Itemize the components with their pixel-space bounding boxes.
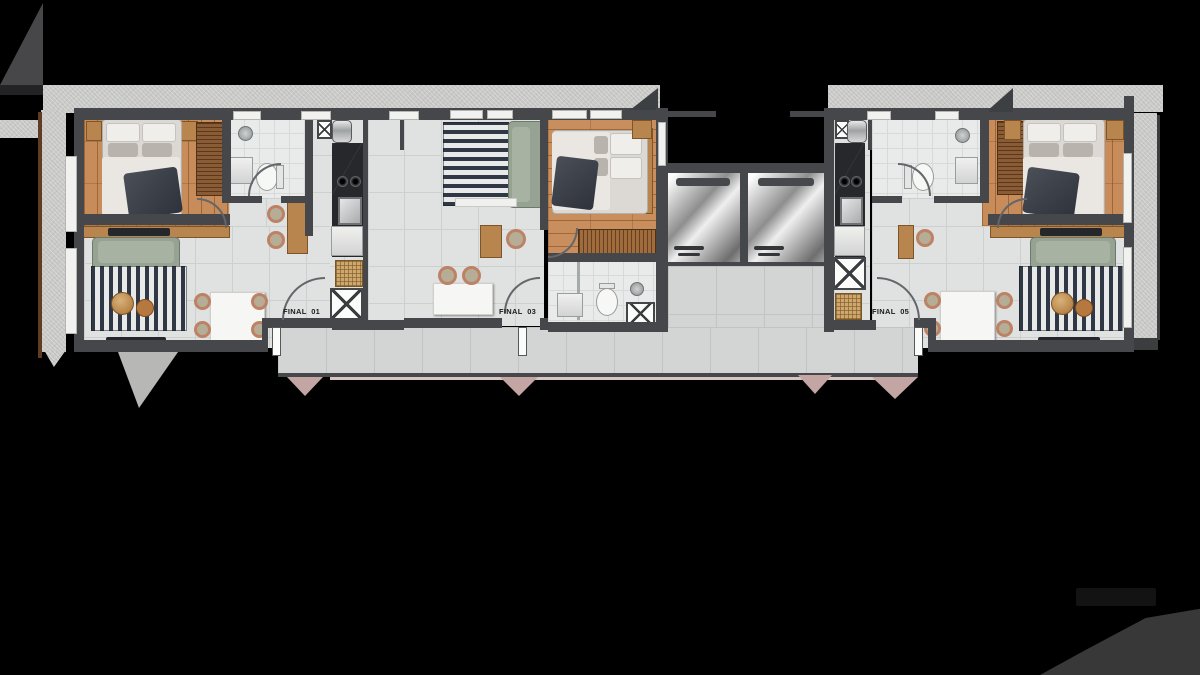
left-balcony-edge <box>38 112 42 358</box>
washing-machine <box>330 288 363 320</box>
elevator-threshold <box>668 262 824 266</box>
dining-chair <box>194 321 211 338</box>
elevator-1-sill-mark <box>678 253 700 256</box>
unit05-kitchen-bottom-wall <box>824 320 876 330</box>
dishwasher <box>834 226 865 256</box>
unit05-entry-step <box>928 318 936 352</box>
left-column-point <box>44 350 66 367</box>
entry-marker-03 <box>500 377 538 396</box>
unit05-bath-wall <box>872 196 902 203</box>
entry-marker-01 <box>287 377 323 396</box>
washing-machine <box>833 257 866 290</box>
laundry-basket <box>335 260 363 287</box>
entry-label-01: FINAL 01 <box>283 307 320 317</box>
coffee-table <box>1075 299 1093 317</box>
pillow <box>610 157 642 179</box>
window-sill <box>65 156 77 232</box>
desk-chair <box>267 205 285 223</box>
laundry-basket <box>835 293 862 320</box>
unit01-bath-wall <box>229 196 262 203</box>
cooktop-burner <box>337 176 348 187</box>
entry-door-leaf-03 <box>518 327 527 356</box>
shaft-stub-right <box>790 111 828 117</box>
corridor-accent-line <box>330 377 882 380</box>
window-sill <box>1123 153 1132 223</box>
dining-chair <box>924 292 941 309</box>
kitchens-divider-wall <box>363 112 368 330</box>
pillow <box>1063 123 1097 142</box>
unit01-entry-step <box>262 318 268 352</box>
unit03-kitchen-floor <box>368 118 404 328</box>
nightstand <box>1004 120 1021 140</box>
blanket <box>1022 167 1080 220</box>
unit03-bottom-wall <box>404 318 502 328</box>
dining-chair <box>996 292 1013 309</box>
dining-chair <box>462 266 481 285</box>
watermark-logo <box>1040 598 1200 675</box>
window-sill <box>233 111 261 120</box>
bathroom-sink <box>955 157 978 184</box>
wardrobe <box>196 122 225 196</box>
kitchen-sink <box>338 197 362 225</box>
desk-chair <box>916 229 934 247</box>
elevator-1-door <box>676 178 730 186</box>
unit01-bottom-wall <box>74 340 268 352</box>
tv <box>1040 228 1102 236</box>
entry-marker-05 <box>872 377 918 399</box>
entry-door-leaf-01 <box>272 327 281 356</box>
nightstand <box>632 120 652 139</box>
terrace-fragment <box>118 352 178 408</box>
unit01-bath-kitchen-wall <box>305 108 313 236</box>
window-sill <box>867 111 891 120</box>
dining-chair <box>194 293 211 310</box>
desk <box>480 225 502 258</box>
toilet <box>596 288 618 316</box>
elevator-2-door <box>758 178 814 186</box>
unit01-rug <box>91 266 187 331</box>
desk-chair <box>267 231 285 249</box>
unit03-entry-step <box>540 318 548 330</box>
nightstand <box>86 121 102 141</box>
left-exterior-column <box>41 110 66 352</box>
window-sill <box>487 110 513 119</box>
right-edge-line <box>1157 115 1160 340</box>
blanket <box>551 156 599 211</box>
tv <box>108 228 170 236</box>
pillow <box>108 143 138 157</box>
elevator-hall-floor <box>668 266 824 327</box>
dining-chair <box>438 266 457 285</box>
pillow <box>142 143 172 157</box>
elevator-2-sill-mark <box>758 253 780 256</box>
shower-head-icon <box>238 126 253 141</box>
shaft-stub-left <box>662 111 716 117</box>
window-sill <box>301 111 331 120</box>
elevator-mullion <box>740 172 748 265</box>
pillow <box>142 123 176 142</box>
elevator-2-sill-mark <box>754 246 784 250</box>
dishwasher <box>331 226 363 256</box>
window-sill <box>1123 247 1132 328</box>
dining-chair <box>251 293 268 310</box>
tv-shelf <box>455 198 517 207</box>
unit01-bed-bath-wall <box>222 108 231 203</box>
unit05-bath-wall <box>934 196 982 203</box>
unit05-bottom-wall <box>928 340 1134 352</box>
bathroom-sink <box>230 157 253 184</box>
unit03-bed-bath-wall <box>548 253 656 262</box>
window-sill <box>450 110 483 119</box>
right-exterior-column <box>1134 113 1157 340</box>
cooktop-burner <box>851 176 862 187</box>
corridor-floor <box>278 327 918 377</box>
window-sill <box>590 110 622 119</box>
dining-table <box>940 291 995 343</box>
pillow <box>1027 123 1061 142</box>
pillow <box>106 123 140 142</box>
desk <box>898 225 914 259</box>
cooktop-burner <box>350 176 361 187</box>
unit03-bath-bottom-wall <box>548 322 666 332</box>
shower-head-icon <box>630 282 644 296</box>
floor-plan: FINAL 01 FINAL 03 FINAL 05 <box>0 0 1200 675</box>
dining-chair <box>996 320 1013 337</box>
elevator-1-sill-mark <box>674 246 704 250</box>
entry-marker-hall <box>798 375 832 394</box>
cooktop-burner <box>839 176 850 187</box>
entry-label-05: FINAL 05 <box>872 307 909 317</box>
dining-table <box>433 283 493 315</box>
window-sill <box>552 110 587 119</box>
kitchens-bottom-wall <box>332 320 404 330</box>
left-wall-stub <box>0 120 43 138</box>
pillow <box>1063 143 1093 157</box>
unit05-bath-bed-wall <box>980 108 989 203</box>
unit03-rug <box>443 122 509 206</box>
fridge <box>332 120 352 143</box>
watermark-logo-mark <box>1076 588 1156 606</box>
window-sill <box>65 248 77 334</box>
right-column-cap <box>1134 338 1158 350</box>
nightstand <box>1106 120 1124 140</box>
unit03-living-bed-wall <box>540 108 548 230</box>
fridge <box>847 120 867 143</box>
roof-cut-triangle <box>0 3 43 85</box>
coffee-table <box>1051 292 1074 315</box>
shower-head-icon <box>955 128 970 143</box>
kitchen-sink <box>840 197 863 225</box>
desk-chair <box>506 229 526 249</box>
window-sill <box>935 111 959 120</box>
coffee-table <box>136 299 154 317</box>
pillow <box>594 136 608 154</box>
shaft-wall-right-upper <box>826 117 834 167</box>
blanket <box>123 166 183 219</box>
window-sill <box>389 111 419 120</box>
coffee-table <box>111 292 134 315</box>
window-sill <box>658 122 666 166</box>
entry-label-03: FINAL 03 <box>499 307 536 317</box>
pillow <box>1029 143 1059 157</box>
entry-door-leaf-05 <box>914 327 923 356</box>
duct-shaft <box>317 120 332 139</box>
bathroom-sink <box>557 293 583 317</box>
roof-base-strip <box>0 85 43 95</box>
